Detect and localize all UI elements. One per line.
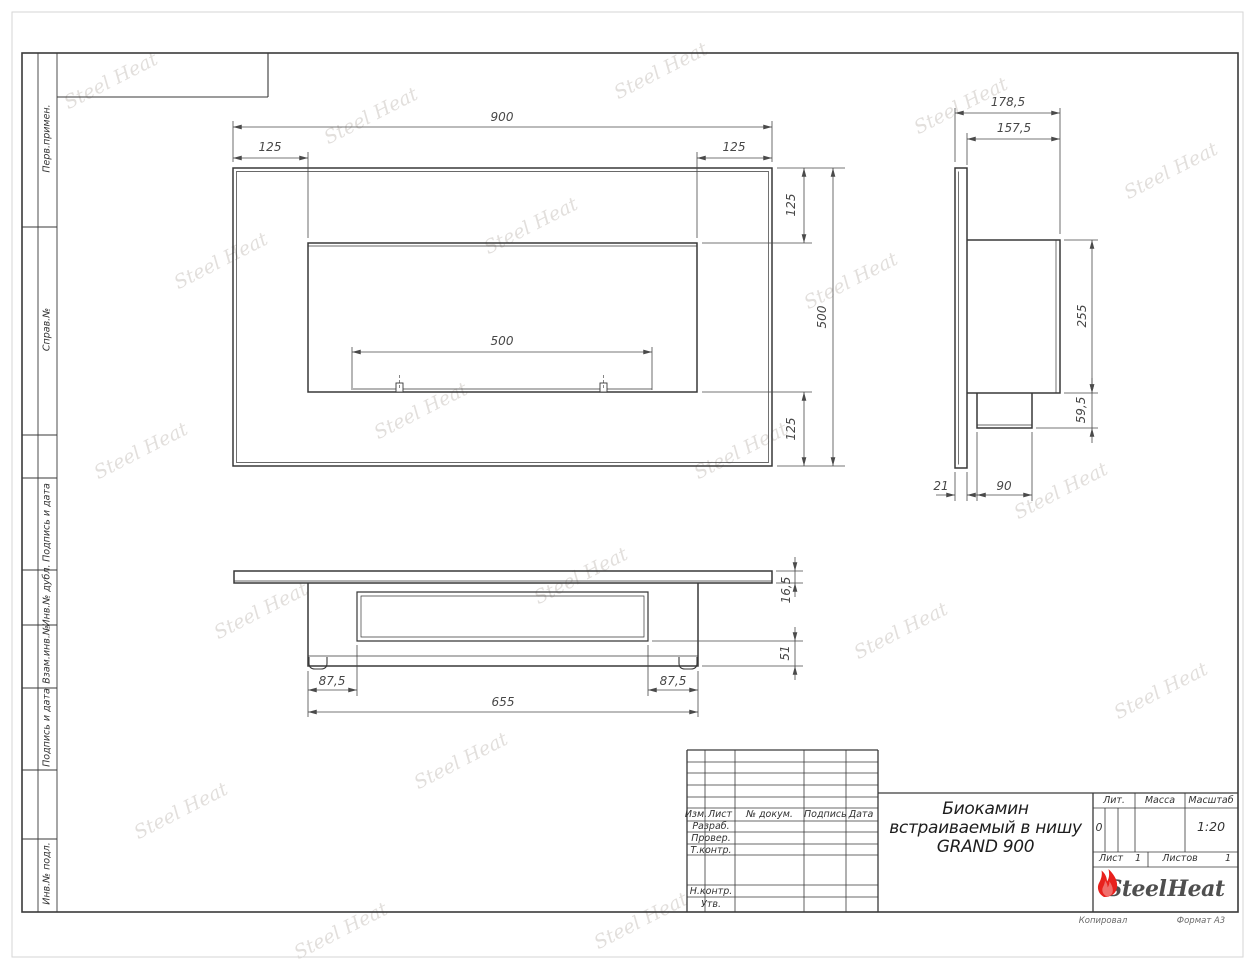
tb-header-dokum: № докум.	[735, 809, 804, 820]
dim-side-box-height: 59,5	[1074, 380, 1088, 440]
tb-sheet-value: 1	[1130, 853, 1146, 864]
dim-side-total-depth: 178,5	[978, 95, 1038, 109]
dim-bottom-flange-thickness: 16,5	[779, 560, 793, 620]
title-line-2: встраиваемый в нишу	[880, 819, 1091, 838]
dim-bottom-base-height: 51	[778, 623, 792, 683]
tb-scale-label: Масштаб	[1185, 795, 1237, 806]
dim-side-box-depth: 90	[974, 479, 1034, 493]
tb-lit-label: Лит.	[1094, 795, 1134, 806]
copied-label: Копировал	[1058, 916, 1148, 926]
tb-header-podpis: Подпись	[804, 809, 846, 820]
front-view	[233, 168, 772, 466]
dim-front-offset-bottom: 125	[784, 399, 798, 459]
side-view	[955, 168, 1060, 468]
dim-bottom-offset-right: 87,5	[643, 674, 703, 688]
dim-bottom-body-width: 655	[473, 695, 533, 709]
format-label: Формат А3	[1156, 916, 1246, 926]
feet	[309, 657, 697, 669]
tb-row-nkontr: Н.контр.	[689, 886, 733, 897]
title-line-1: Биокамин	[880, 800, 1091, 819]
margin-label-perv-primen: Перв.примен.	[42, 59, 53, 219]
margin-label-sprav-no: Справ.№	[42, 250, 53, 410]
drawing-sheet: Steel Heat Steel Heat Steel Heat Steel H…	[0, 0, 1255, 970]
drawing-frame	[22, 53, 1238, 912]
document-title: Биокамин встраиваемый в нишу GRAND 900	[880, 800, 1091, 857]
tb-mass-label: Масса	[1136, 795, 1184, 806]
tb-lit-value: 0	[1089, 822, 1109, 833]
dimension-lines	[233, 108, 1098, 717]
tb-scale-value: 1:20	[1185, 821, 1237, 832]
steelheat-logo: Steel Heat	[1095, 868, 1236, 910]
dim-front-width: 900	[472, 110, 532, 124]
tb-header-list: Лист	[705, 809, 735, 820]
dim-side-panel-thickness: 21	[911, 479, 971, 493]
bottom-view	[234, 571, 772, 669]
tb-sheet-label: Лист	[1094, 853, 1128, 864]
tb-header-data: Дата	[845, 809, 877, 820]
logo-heat-text: Heat	[1167, 876, 1224, 902]
margin-label-podpis-data-2: Подпись и дата	[42, 648, 53, 808]
dim-front-offset-right: 125	[704, 140, 764, 154]
title-line-3: GRAND 900	[880, 838, 1091, 857]
dim-front-opening-width: 500	[472, 334, 532, 348]
dim-bottom-offset-left: 87,5	[302, 674, 362, 688]
tb-row-razrab: Разраб.	[689, 821, 733, 832]
tb-row-utv: Утв.	[689, 899, 733, 910]
dim-front-offset-left: 125	[240, 140, 300, 154]
tb-row-prover: Провер.	[689, 833, 733, 844]
tb-row-tkontr: Т.контр.	[689, 845, 733, 856]
tb-sheets-value: 1	[1220, 853, 1236, 864]
dim-side-body-depth: 157,5	[984, 121, 1044, 135]
flame-icon	[1095, 868, 1119, 898]
dim-side-body-height: 255	[1075, 286, 1089, 346]
margin-label-inv-podl: Инв.№ подл.	[42, 794, 53, 954]
dim-front-offset-top: 125	[784, 175, 798, 235]
tb-sheets-label: Листов	[1158, 853, 1202, 864]
dim-front-height: 500	[815, 287, 829, 347]
